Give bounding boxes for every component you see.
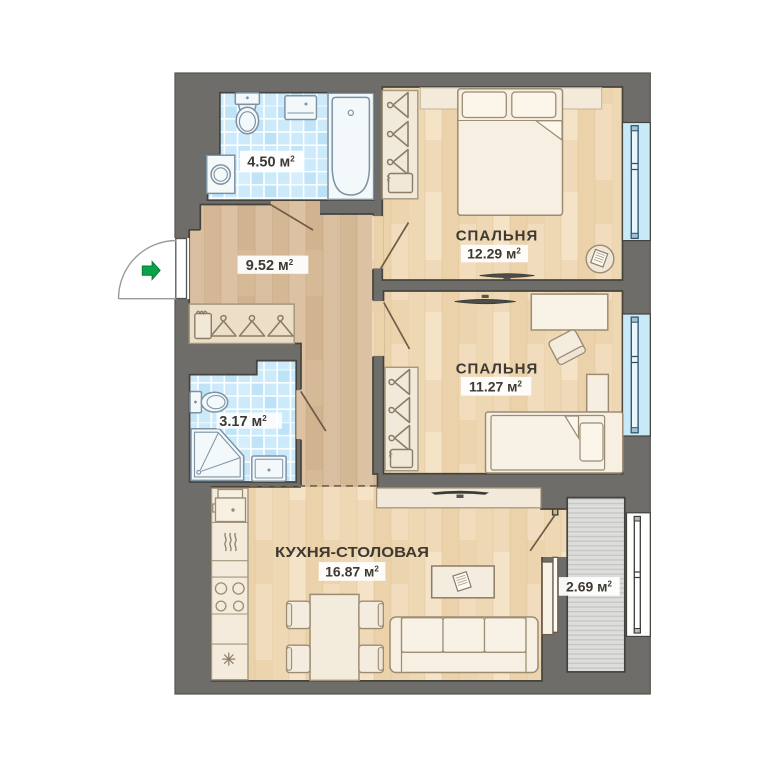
svg-text:4.50 м2: 4.50 м2 (247, 155, 295, 171)
svg-text:СПАЛЬНЯ: СПАЛЬНЯ (456, 361, 539, 378)
svg-text:12.29 м2: 12.29 м2 (467, 246, 521, 262)
svg-text:9.52 м2: 9.52 м2 (246, 258, 294, 274)
svg-text:3.17 м2: 3.17 м2 (219, 414, 267, 430)
svg-text:11.27 м2: 11.27 м2 (469, 378, 523, 394)
svg-text:СПАЛЬНЯ: СПАЛЬНЯ (456, 228, 539, 245)
svg-text:КУХНЯ-СТОЛОВАЯ: КУХНЯ-СТОЛОВАЯ (275, 544, 429, 561)
svg-text:16.87 м2: 16.87 м2 (325, 563, 379, 579)
svg-text:2.69 м2: 2.69 м2 (566, 578, 613, 594)
